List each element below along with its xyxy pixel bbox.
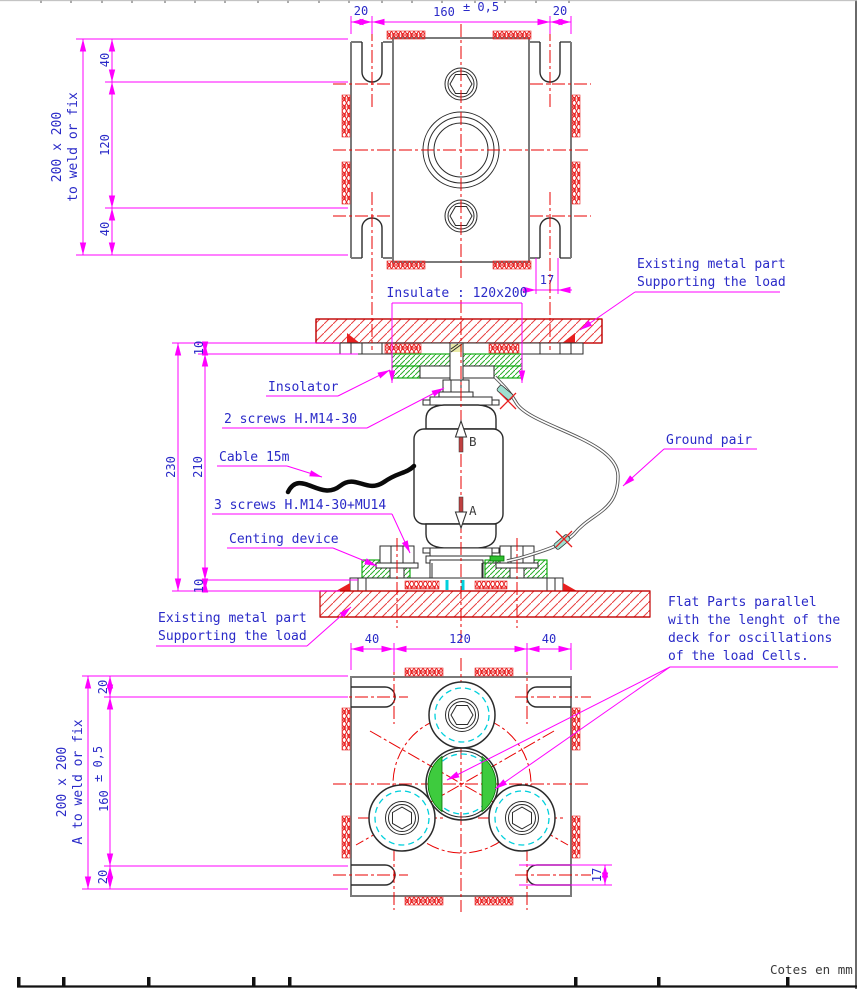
dim-20-top-b: 20 xyxy=(96,680,110,694)
dim-10-bottom: 10 xyxy=(192,579,206,593)
dim-230: 230 xyxy=(164,456,178,478)
section-view: B A Insulate : 120x200 xyxy=(156,257,786,646)
scale-ticks xyxy=(17,977,790,986)
dim-10-top: 10 xyxy=(192,341,206,355)
label-cable: Cable 15m xyxy=(219,450,290,465)
side-label-1: 200 x 200 xyxy=(50,112,65,182)
existing-beam-bottom xyxy=(320,591,650,617)
cable xyxy=(288,466,414,492)
dim-120-b: 120 xyxy=(449,632,471,646)
label-insolator: Insolator xyxy=(268,380,339,395)
dim-20-right: 20 xyxy=(553,4,567,18)
flat-note-3: deck for oscillations xyxy=(668,631,832,646)
flat-note-1: Flat Parts parallel xyxy=(668,595,817,610)
bottom-left-dimensions: 20 160 ± 0,5 20 200 x 200 A to weld or f… xyxy=(55,676,348,889)
axis-label-a: A xyxy=(469,503,477,518)
label-screws-bottom: 3 screws H.M14-30+MU14 xyxy=(214,498,386,513)
existing-beam-top xyxy=(316,319,602,343)
dim-40-right: 40 xyxy=(542,632,556,646)
washer-bottom-right xyxy=(489,785,555,851)
units-note: Cotes en mm xyxy=(770,962,853,977)
label-screws-top: 2 screws H.M14-30 xyxy=(224,412,357,427)
screw-nut xyxy=(443,380,469,392)
flat-note-4: of the load Cells. xyxy=(668,649,809,664)
section-left-dimensions: 230 210 10 10 xyxy=(164,341,358,593)
side-label-b1: 200 x 200 xyxy=(55,747,70,817)
dim-17-b: 17 xyxy=(590,868,604,882)
dim-160-tol-b: ± 0,5 xyxy=(91,746,105,782)
washer-top xyxy=(429,682,495,748)
cad-drawing-page: 20 160 ± 0,5 20 40 120 40 200 x 200 to w… xyxy=(0,0,857,989)
dim-160-b: 160 xyxy=(97,790,111,812)
top-view: 20 160 ± 0,5 20 40 120 40 200 x 200 to w… xyxy=(50,0,591,294)
label-centring: Centing device xyxy=(229,532,339,547)
dim-40-bottom: 40 xyxy=(98,222,112,236)
dim-40-top: 40 xyxy=(98,53,112,67)
note-existing-top-2: Supporting the load xyxy=(637,275,786,290)
axis-label-b: B xyxy=(469,434,477,449)
dim-17: 17 xyxy=(540,273,554,287)
dim-40-left: 40 xyxy=(365,632,379,646)
label-ground-pair: Ground pair xyxy=(666,433,752,448)
side-label-2: to weld or fix xyxy=(66,92,81,202)
load-cell-mounting-drawing: 20 160 ± 0,5 20 40 120 40 200 x 200 to w… xyxy=(0,0,857,989)
dim-160-tol: ± 0,5 xyxy=(463,0,499,14)
dim-210: 210 xyxy=(191,456,205,478)
flat-note-2: with the lenght of the xyxy=(668,613,840,628)
ground-pad xyxy=(490,556,504,561)
note-existing-bottom-2: Supporting the load xyxy=(158,629,307,644)
dim-120: 120 xyxy=(98,134,112,156)
dim-160: 160 xyxy=(433,5,455,19)
load-cell xyxy=(414,397,503,563)
dim-insulate: Insulate : 120x200 xyxy=(387,286,528,301)
left-dimensions: 40 120 40 200 x 200 to weld or fix xyxy=(50,39,348,255)
washer-bottom-left xyxy=(369,785,435,851)
wire-cut-marks xyxy=(500,393,572,547)
flat-parts-note: Flat Parts parallel with the lenght of t… xyxy=(447,595,840,789)
bottom-plate-edge xyxy=(350,578,563,591)
side-label-b2: A to weld or fix xyxy=(71,719,86,844)
note-existing-bottom-1: Existing metal part xyxy=(158,611,307,626)
dim-20-bottom-b: 20 xyxy=(96,870,110,884)
footer: Cotes en mm xyxy=(17,962,857,987)
ground-wire xyxy=(495,377,618,561)
note-existing-top-1: Existing metal part xyxy=(637,257,786,272)
dim-20-left: 20 xyxy=(354,4,368,18)
